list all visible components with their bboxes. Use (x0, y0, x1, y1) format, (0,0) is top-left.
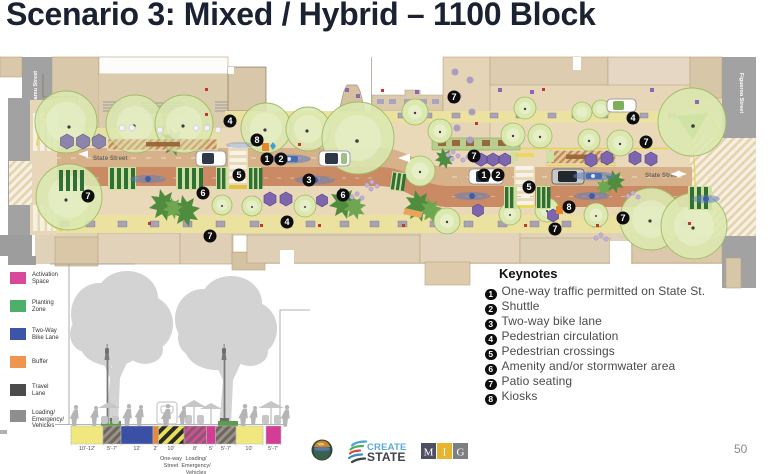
svg-text:M: M (424, 447, 434, 459)
svg-text:I: I (443, 447, 447, 459)
svg-text:G: G (457, 447, 465, 459)
svg-text:STATE: STATE (367, 450, 406, 464)
